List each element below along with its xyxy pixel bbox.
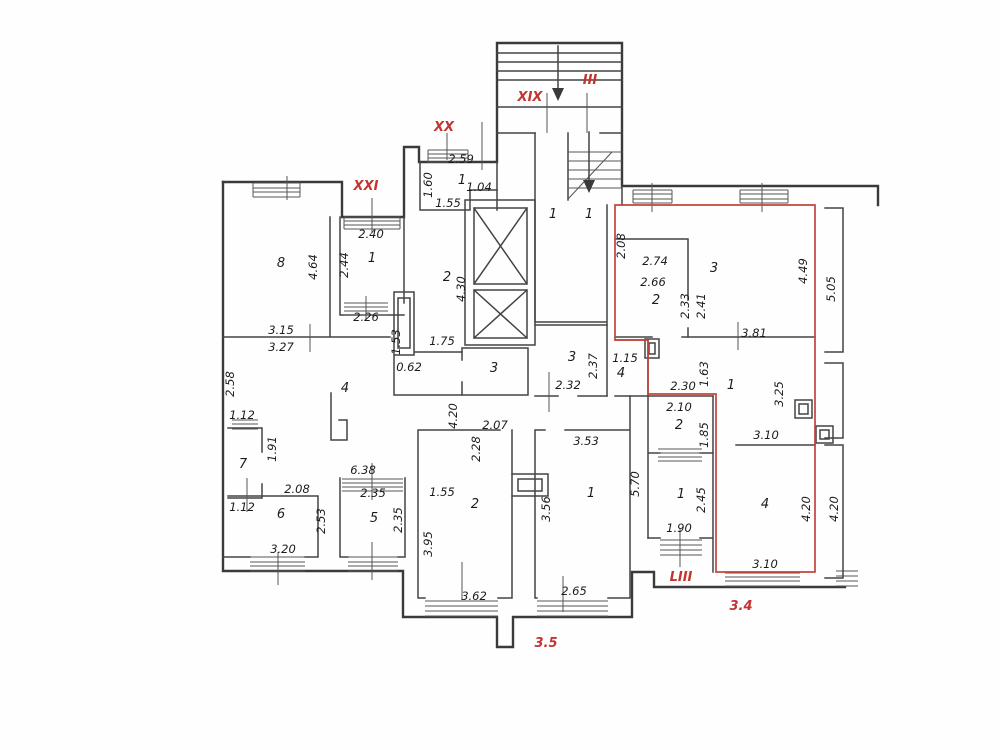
red-annotation-label: III — [583, 73, 598, 88]
dimension-label: 2.41 — [694, 293, 708, 319]
dimension-label: 4.49 — [796, 258, 810, 284]
floor-plan-page: 2.591.041.552.402.263.153.271.750.622.74… — [0, 0, 1000, 750]
red-annotation-label: XXI — [353, 179, 379, 194]
room-number-label: 8 — [277, 256, 285, 271]
dimension-label: 3.20 — [270, 542, 296, 556]
dimension-label: 5.70 — [628, 471, 642, 497]
room-number-label: 1 — [727, 378, 735, 393]
dimension-label: 1.85 — [697, 422, 711, 448]
room-number-label: 3 — [568, 350, 576, 365]
red-annotation-label: XX — [433, 120, 455, 135]
floor-plan-drawing: 2.591.041.552.402.263.153.271.750.622.74… — [0, 0, 1000, 750]
dimension-label: 4.20 — [799, 496, 813, 522]
room-number-label: 1 — [458, 173, 466, 188]
room-number-label: 3 — [490, 361, 498, 376]
dimension-label: 2.45 — [694, 487, 708, 513]
dimension-label: 3.15 — [268, 323, 294, 337]
room-number-label: 2 — [443, 270, 451, 285]
dimension-label: 2.07 — [482, 418, 508, 432]
dimension-label: 2.08 — [284, 482, 310, 496]
dimension-label: 2.28 — [469, 436, 483, 462]
dimension-label: 1.90 — [666, 521, 692, 535]
dimension-label: 2.66 — [640, 275, 666, 289]
room-number-label: 5 — [370, 511, 378, 526]
dimension-label: 1.12 — [229, 408, 255, 422]
dimension-label: 3.53 — [573, 434, 599, 448]
dimension-label: 4.30 — [454, 276, 468, 302]
dimension-label: 2.74 — [642, 254, 668, 268]
dimension-label: 2.44 — [337, 252, 351, 278]
windows — [232, 150, 858, 616]
dimension-label: 2.32 — [555, 378, 581, 392]
red-annotation-label: 3.5 — [534, 636, 557, 651]
room-number-label: 1 — [587, 486, 595, 501]
dimension-label: 1.63 — [697, 361, 711, 387]
dimension-label: 6.38 — [350, 463, 376, 477]
room-number-label: 2 — [652, 293, 660, 308]
dimension-label: 2.35 — [391, 507, 405, 533]
dimension-label: 2.53 — [314, 508, 328, 534]
dimension-label: 2.10 — [666, 400, 692, 414]
dimension-label: 2.59 — [448, 152, 474, 166]
dimension-label: 3.27 — [268, 340, 294, 354]
dimension-label: 3.56 — [539, 496, 553, 522]
dimension-label: 1.04 — [466, 180, 492, 194]
red-annotation-label: XIX — [517, 90, 544, 105]
room-number-labels: 812111334765213212144 — [239, 173, 769, 526]
dimension-label: 4.20 — [827, 496, 841, 522]
dimension-label: 2.30 — [670, 379, 696, 393]
dimension-label: 1.91 — [265, 436, 279, 462]
outer-walls — [223, 43, 878, 647]
room-number-label: 1 — [368, 251, 376, 266]
dimension-label: 1.60 — [421, 172, 435, 198]
dimension-label: 2.40 — [358, 227, 384, 241]
entry-arrow-icon — [552, 88, 564, 101]
dimension-label: 1.53 — [389, 329, 403, 355]
red-annotation-label: LIII — [670, 570, 693, 585]
room-number-label: 7 — [239, 457, 248, 472]
room-number-label: 1 — [549, 207, 557, 222]
dimension-label: 0.62 — [396, 360, 422, 374]
dimension-label: 5.05 — [824, 276, 838, 302]
dimension-label: 3.95 — [421, 531, 435, 557]
room-number-label: 2 — [471, 497, 479, 512]
dimension-label: 2.58 — [223, 371, 237, 397]
dimension-label: 2.26 — [353, 310, 379, 324]
red-annotation-label: 3.4 — [729, 599, 752, 614]
dimension-label: 1.55 — [435, 196, 461, 210]
dimension-label: 1.75 — [429, 334, 455, 348]
room-number-label: 3 — [710, 261, 718, 276]
dimension-label: 4.64 — [306, 254, 320, 280]
dimension-label: 1.55 — [429, 485, 455, 499]
dimension-label: 2.08 — [614, 233, 628, 259]
dimension-ticks — [247, 122, 762, 612]
dimension-label: 2.65 — [561, 584, 587, 598]
dimension-label: 3.10 — [752, 557, 778, 571]
room-number-label: 6 — [277, 507, 285, 522]
room-number-label: 4 — [617, 366, 625, 381]
stair-arrow-icon — [583, 180, 595, 193]
elevator-shafts — [465, 200, 535, 345]
room-number-label: 4 — [341, 381, 349, 396]
dimension-label: 3.62 — [461, 589, 487, 603]
room-number-label: 1 — [585, 207, 593, 222]
dimension-labels: 2.591.041.552.402.263.153.271.750.622.74… — [223, 152, 841, 603]
entrance-vestibule — [497, 46, 622, 210]
staircase — [535, 132, 622, 396]
dimension-label: 1.12 — [229, 500, 255, 514]
dimension-label: 2.35 — [360, 486, 386, 500]
room-number-label: 4 — [761, 497, 769, 512]
room-number-label: 1 — [677, 487, 685, 502]
dimension-label: 1.15 — [612, 351, 638, 365]
dimension-label: 3.81 — [741, 326, 767, 340]
dimension-label: 4.20 — [446, 403, 460, 429]
dimension-label: 2.37 — [586, 353, 600, 379]
dimension-label: 2.33 — [678, 293, 692, 319]
dimension-label: 3.10 — [753, 428, 779, 442]
right-apartment-walls — [615, 186, 815, 572]
dimension-label: 3.25 — [772, 381, 786, 407]
room-number-label: 2 — [675, 418, 683, 433]
